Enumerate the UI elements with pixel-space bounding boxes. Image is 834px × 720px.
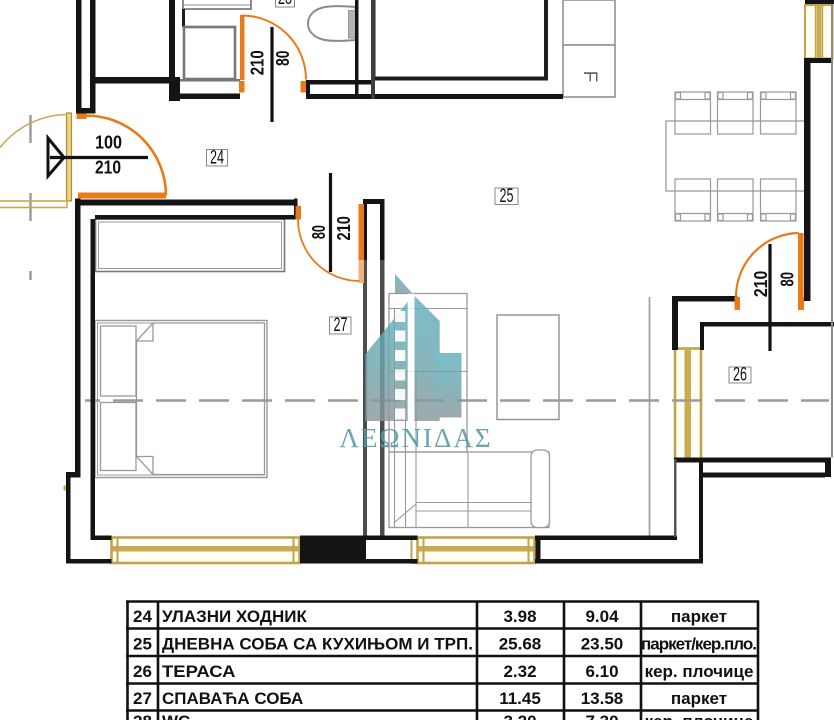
- svg-text:3.20: 3.20: [503, 712, 536, 720]
- svg-text:28: 28: [278, 0, 292, 9]
- svg-text:7.30: 7.30: [585, 712, 618, 720]
- svg-text:паркет/кер.пло.: паркет/кер.пло.: [641, 635, 757, 654]
- svg-text:27: 27: [133, 689, 152, 708]
- svg-text:24: 24: [133, 607, 152, 626]
- svg-text:ΛΕΩΝΙΔΑΣ: ΛΕΩΝΙΔΑΣ: [339, 423, 492, 453]
- svg-text:кер. плочице: кер. плочице: [645, 712, 754, 720]
- svg-text:26: 26: [733, 365, 747, 386]
- svg-text:13.58: 13.58: [581, 689, 624, 708]
- svg-text:2.32: 2.32: [503, 662, 536, 681]
- svg-text:210: 210: [248, 50, 268, 75]
- svg-text:28: 28: [133, 712, 152, 720]
- svg-text:25: 25: [500, 186, 514, 207]
- svg-text:80: 80: [777, 272, 797, 287]
- svg-text:80: 80: [309, 225, 329, 239]
- svg-text:9.04: 9.04: [585, 607, 619, 626]
- svg-text:210: 210: [334, 216, 354, 241]
- svg-text:WC: WC: [162, 712, 190, 720]
- svg-text:F: F: [579, 71, 600, 83]
- svg-text:24: 24: [210, 148, 224, 169]
- svg-text:3.98: 3.98: [503, 607, 536, 626]
- svg-text:УЛАЗНИ ХОДНИК: УЛАЗНИ ХОДНИК: [162, 607, 308, 626]
- svg-text:ТЕРАСА: ТЕРАСА: [162, 662, 236, 681]
- svg-text:кер. плочице: кер. плочице: [645, 662, 754, 681]
- svg-text:ДНЕВНА СОБА СА КУХИЊОМ И ТРП.: ДНЕВНА СОБА СА КУХИЊОМ И ТРП.: [162, 635, 473, 654]
- svg-text:80: 80: [273, 50, 293, 65]
- svg-text:23.50: 23.50: [581, 635, 624, 654]
- svg-text:11.45: 11.45: [499, 689, 541, 708]
- svg-text:СПАВАЋА СОБА: СПАВАЋА СОБА: [162, 689, 303, 708]
- svg-text:6.10: 6.10: [585, 662, 618, 681]
- svg-text:27: 27: [334, 315, 348, 336]
- svg-text:210: 210: [95, 158, 121, 178]
- svg-text:паркет: паркет: [671, 607, 727, 626]
- svg-text:паркет: паркет: [671, 689, 727, 708]
- svg-text:25: 25: [133, 635, 152, 654]
- svg-text:100: 100: [95, 132, 122, 152]
- svg-text:210: 210: [751, 271, 771, 298]
- svg-text:26: 26: [133, 662, 152, 681]
- svg-text:25.68: 25.68: [499, 635, 542, 654]
